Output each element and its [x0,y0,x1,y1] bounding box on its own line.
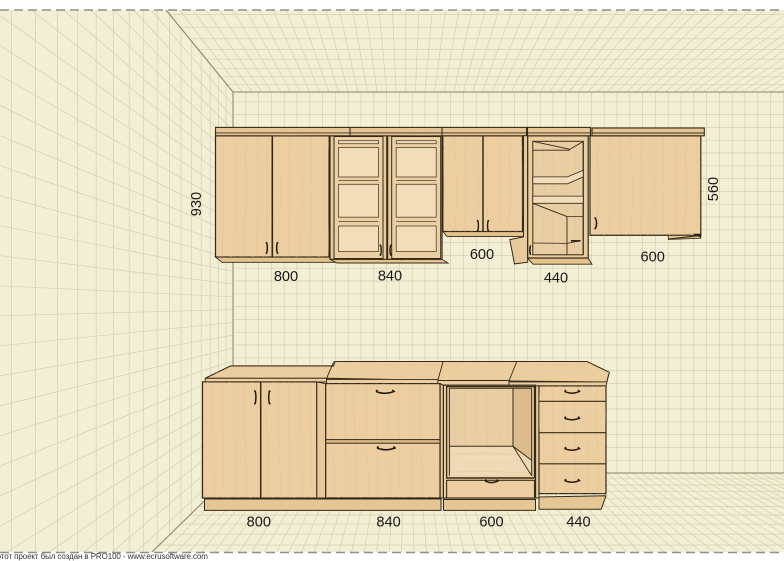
svg-text:600: 600 [641,249,665,265]
svg-text:600: 600 [470,247,494,263]
svg-text:840: 840 [376,514,400,530]
svg-text:930: 930 [189,192,205,216]
svg-text:800: 800 [274,269,298,285]
svg-text:440: 440 [566,514,590,530]
svg-text:840: 840 [378,269,402,285]
svg-text:440: 440 [544,270,568,286]
svg-text:этот проект был создан в PRO10: этот проект был создан в PRO100 - www.ec… [0,552,208,561]
svg-text:560: 560 [706,177,722,201]
svg-text:600: 600 [479,514,503,530]
svg-text:800: 800 [247,514,271,530]
